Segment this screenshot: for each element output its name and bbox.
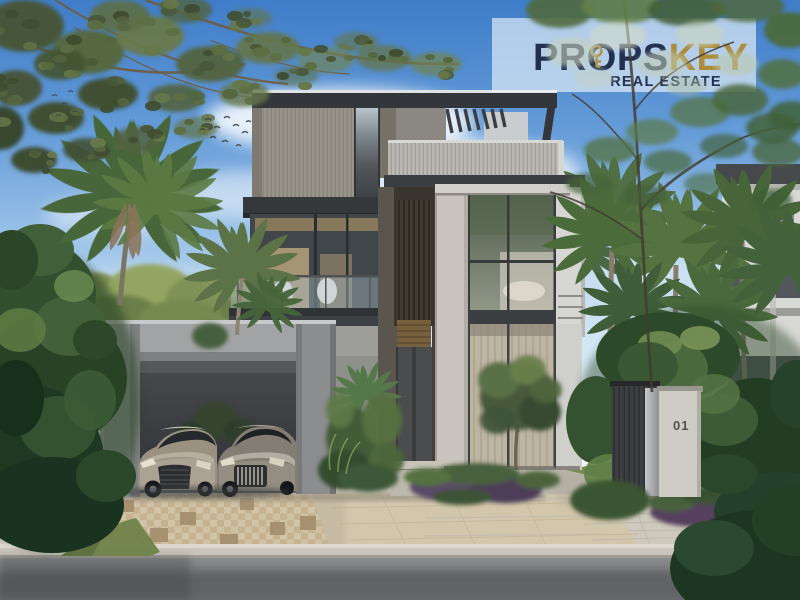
svg-text:01: 01	[673, 418, 689, 433]
